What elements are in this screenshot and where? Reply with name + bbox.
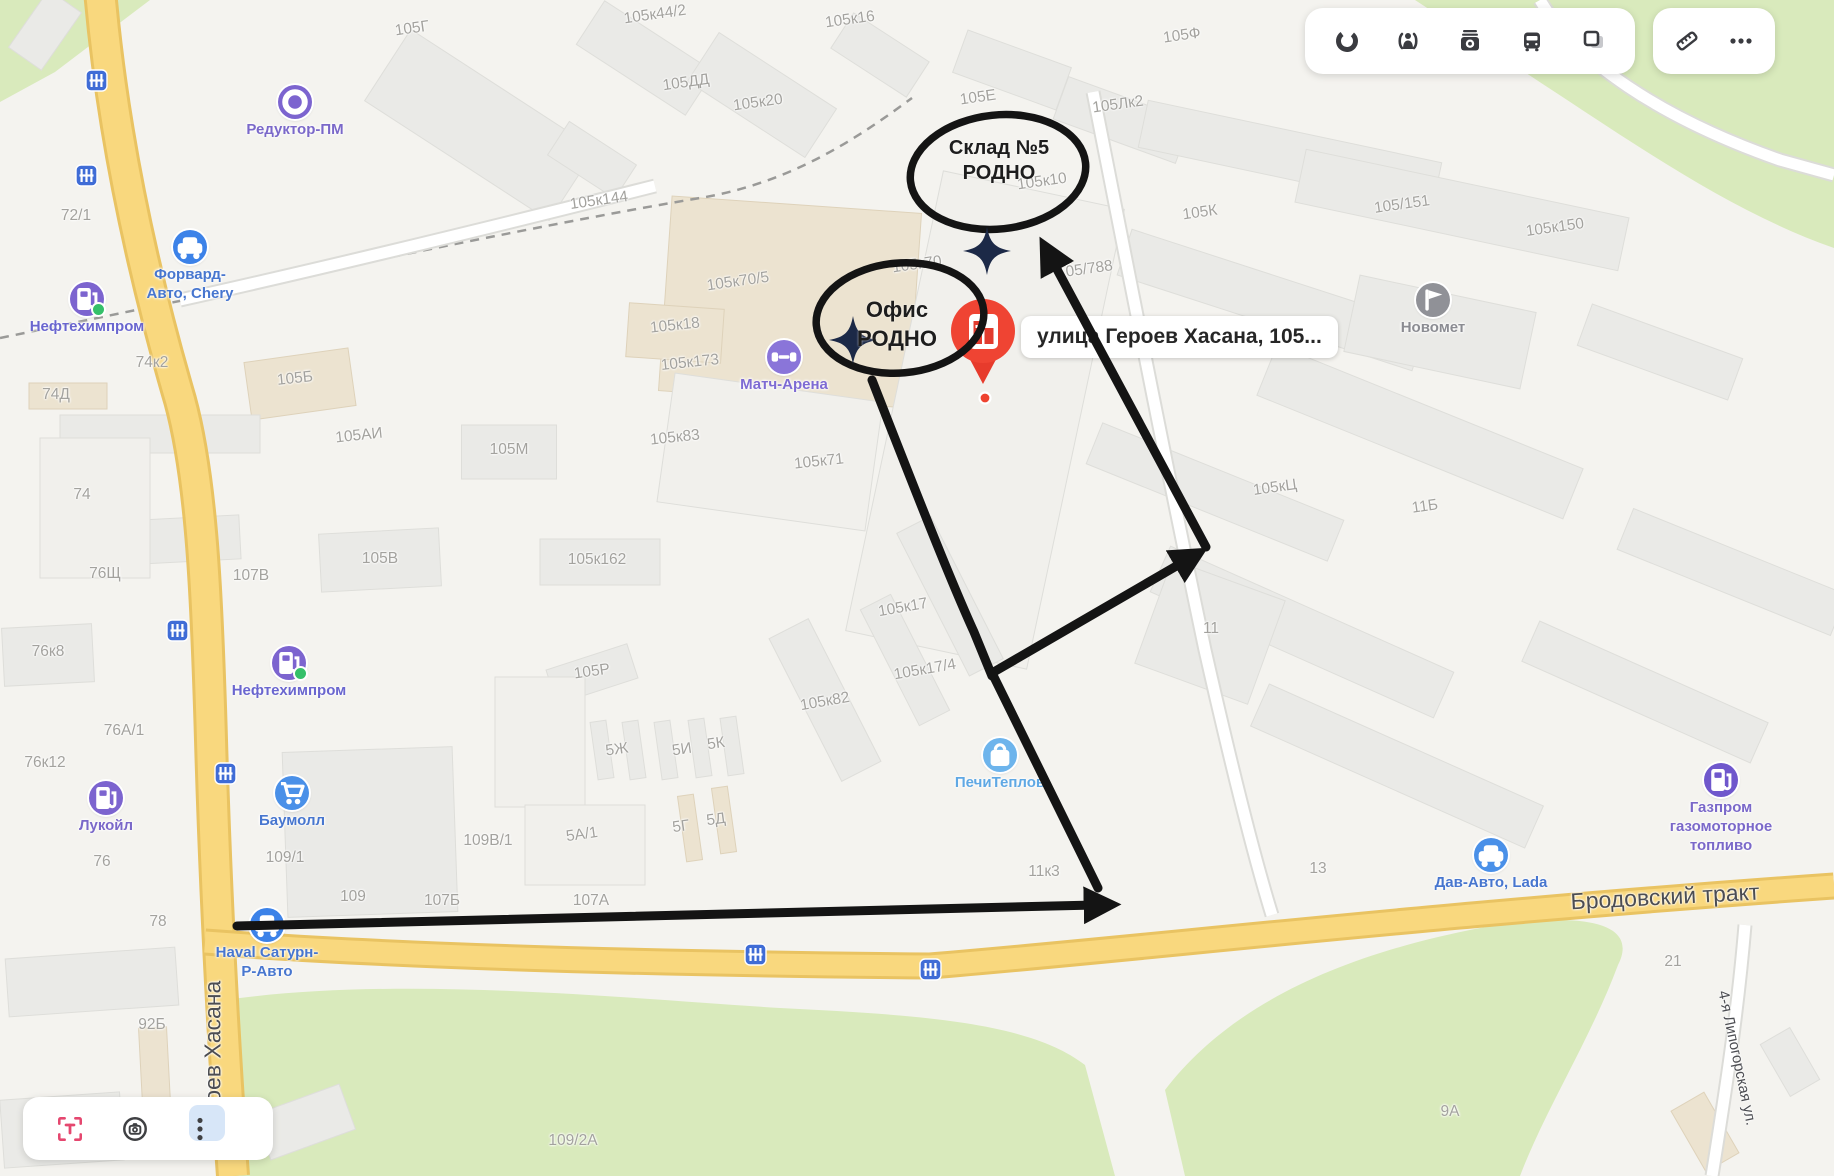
building-label: 5А/1	[565, 824, 599, 846]
building-label: 105к83	[649, 426, 700, 449]
office-annotation-text: Офис РОДНО	[857, 295, 937, 353]
fuel-icon[interactable]	[70, 282, 104, 316]
building-label: 105/788	[1056, 257, 1114, 283]
railway-crossing-icon	[166, 619, 189, 642]
poi-label: ПечиТеплов	[955, 773, 1045, 792]
building-label: 72/1	[61, 207, 91, 225]
railway-crossing-icon	[85, 69, 108, 92]
building-label: 109/1	[266, 849, 305, 867]
building-label: 109В/1	[463, 832, 512, 850]
ruler-icon[interactable]	[1667, 21, 1707, 61]
poi-label: Матч-Арена	[740, 375, 828, 394]
warehouse-line2: РОДНО	[949, 161, 1049, 186]
building-label: 76к12	[24, 754, 65, 772]
poi-label: Форвард-Авто, Chery	[146, 265, 233, 303]
flag-icon[interactable]	[1416, 283, 1450, 317]
building-label: 105М	[490, 441, 529, 459]
building-label: 78	[149, 913, 166, 931]
ring-icon[interactable]	[278, 85, 312, 119]
building-label: 74к2	[136, 354, 169, 372]
building-label: 109/2А	[548, 1132, 597, 1150]
building-label: 74Д	[42, 386, 70, 404]
poi-label: Баумолл	[259, 811, 325, 830]
building-label: 76к8	[32, 643, 65, 661]
building-label: 9А	[1441, 1103, 1460, 1121]
building-label: 13	[1309, 860, 1326, 878]
map-labels-layer: 105Г105к44/2105к16105Ф105ДД105к20105Е105…	[0, 0, 1834, 1176]
bag-icon[interactable]	[983, 738, 1017, 772]
building-label: 105Е	[959, 87, 997, 110]
building-label: 76А/1	[104, 722, 145, 740]
railway-crossing-icon	[75, 164, 98, 187]
text-recognition-icon[interactable]	[48, 1107, 92, 1151]
building-label: 92Б	[138, 1016, 165, 1034]
building-label: 105к173	[660, 351, 720, 375]
address-bubble[interactable]: улица Героев Хасана, 105...	[1021, 316, 1338, 358]
building-label: 107Б	[424, 892, 460, 910]
image-search-icon[interactable]	[113, 1107, 157, 1151]
building-label: 105к16	[824, 8, 876, 33]
building-label: 105к144	[569, 188, 629, 214]
building-label: 5Г	[671, 817, 690, 837]
more-icon[interactable]	[1721, 21, 1761, 61]
poi-label: Новомет	[1401, 318, 1466, 337]
building-label: 105/151	[1373, 192, 1431, 218]
building-label: 105кЦ	[1252, 476, 1298, 500]
warehouse-line1: Склад №5	[949, 136, 1049, 161]
building-label: 105к44/2	[623, 2, 688, 29]
building-label: 109	[340, 888, 366, 906]
building-label: 105Лк2	[1091, 93, 1144, 118]
railway-crossing-icon	[744, 943, 767, 966]
building-label: 105В	[362, 550, 398, 568]
poi-label: Haval Сатурн-Р-Авто	[216, 943, 319, 981]
building-label: 5Ж	[604, 739, 629, 760]
building-label: 107В	[233, 567, 269, 585]
open-status-dot	[293, 666, 308, 681]
open-status-dot	[91, 302, 106, 317]
dumbbell-icon[interactable]	[767, 340, 801, 374]
street-label: Бродовский тракт	[1570, 879, 1760, 916]
building-label: 105Р	[573, 661, 611, 684]
traffic-icon[interactable]	[1327, 21, 1367, 61]
building-label: 105к162	[568, 551, 627, 569]
railway-crossing-icon	[919, 958, 942, 981]
fuel-icon[interactable]	[272, 646, 306, 680]
bottom-left-controls	[23, 1097, 273, 1160]
building-label: 105Б	[276, 368, 314, 390]
layers-icon[interactable]	[1573, 21, 1613, 61]
transport-icon[interactable]	[1512, 21, 1552, 61]
building-label: 105к17	[877, 595, 929, 621]
map-toolbar	[1305, 8, 1635, 74]
building-label: 74	[73, 486, 90, 504]
panoramas-icon[interactable]	[1388, 21, 1428, 61]
building-label: 76Щ	[89, 565, 121, 583]
poi-label: Нефтехимпром	[232, 681, 347, 700]
building-label: 107А	[573, 892, 609, 910]
poi-label: Газпромгазомоторноетопливо	[1670, 798, 1773, 855]
railway-crossing-icon	[214, 762, 237, 785]
poi-label: Лукойл	[79, 816, 133, 835]
building-label: 105к70/5	[706, 269, 771, 296]
car-icon[interactable]	[250, 908, 284, 942]
car-icon[interactable]	[1474, 838, 1508, 872]
building-label: 105к17/4	[893, 656, 958, 685]
warehouse-annotation-text: Склад №5 РОДНО	[949, 136, 1049, 186]
building-label: 105к18	[649, 314, 700, 337]
building-label: 76	[93, 853, 110, 871]
building-label: 5К	[706, 734, 726, 754]
more-vertical-icon[interactable]	[178, 1107, 222, 1151]
building-label: 5И	[671, 740, 693, 761]
poi-label: Редуктор-ПМ	[246, 120, 343, 139]
building-label: 105к70	[891, 253, 943, 278]
building-label: 105к150	[1525, 215, 1585, 241]
building-label: 105Ф	[1162, 24, 1202, 47]
building-label: 5Д	[705, 810, 726, 830]
car-icon[interactable]	[173, 230, 207, 264]
building-label: 105ДД	[662, 71, 711, 95]
map-canvas[interactable]: 105Г105к44/2105к16105Ф105ДД105к20105Е105…	[0, 0, 1834, 1176]
cart-icon[interactable]	[275, 776, 309, 810]
building-label: 105к71	[793, 450, 844, 473]
building-label: 105К	[1181, 202, 1218, 225]
photos-icon[interactable]	[1450, 21, 1490, 61]
building-label: 21	[1664, 953, 1681, 971]
building-label: 105к20	[732, 91, 784, 116]
building-label: 11Б	[1411, 496, 1440, 517]
fuel-icon[interactable]	[89, 781, 123, 815]
street-label: 4-я Липогорская ул.	[1714, 989, 1759, 1127]
building-label: 105АИ	[335, 425, 384, 448]
building-label: 11к3	[1028, 863, 1060, 881]
office-line1: Офис	[857, 295, 937, 324]
poi-label: Нефтехимпром	[30, 317, 145, 336]
map-tools-pill	[1653, 8, 1775, 74]
office-line2: РОДНО	[857, 324, 937, 353]
building-label: 11	[1203, 620, 1219, 638]
building-label: 105к82	[799, 689, 851, 715]
building-label: 105Г	[394, 18, 430, 41]
fuel-icon[interactable]	[1704, 763, 1738, 797]
poi-label: Дав-Авто, Lada	[1435, 873, 1548, 892]
